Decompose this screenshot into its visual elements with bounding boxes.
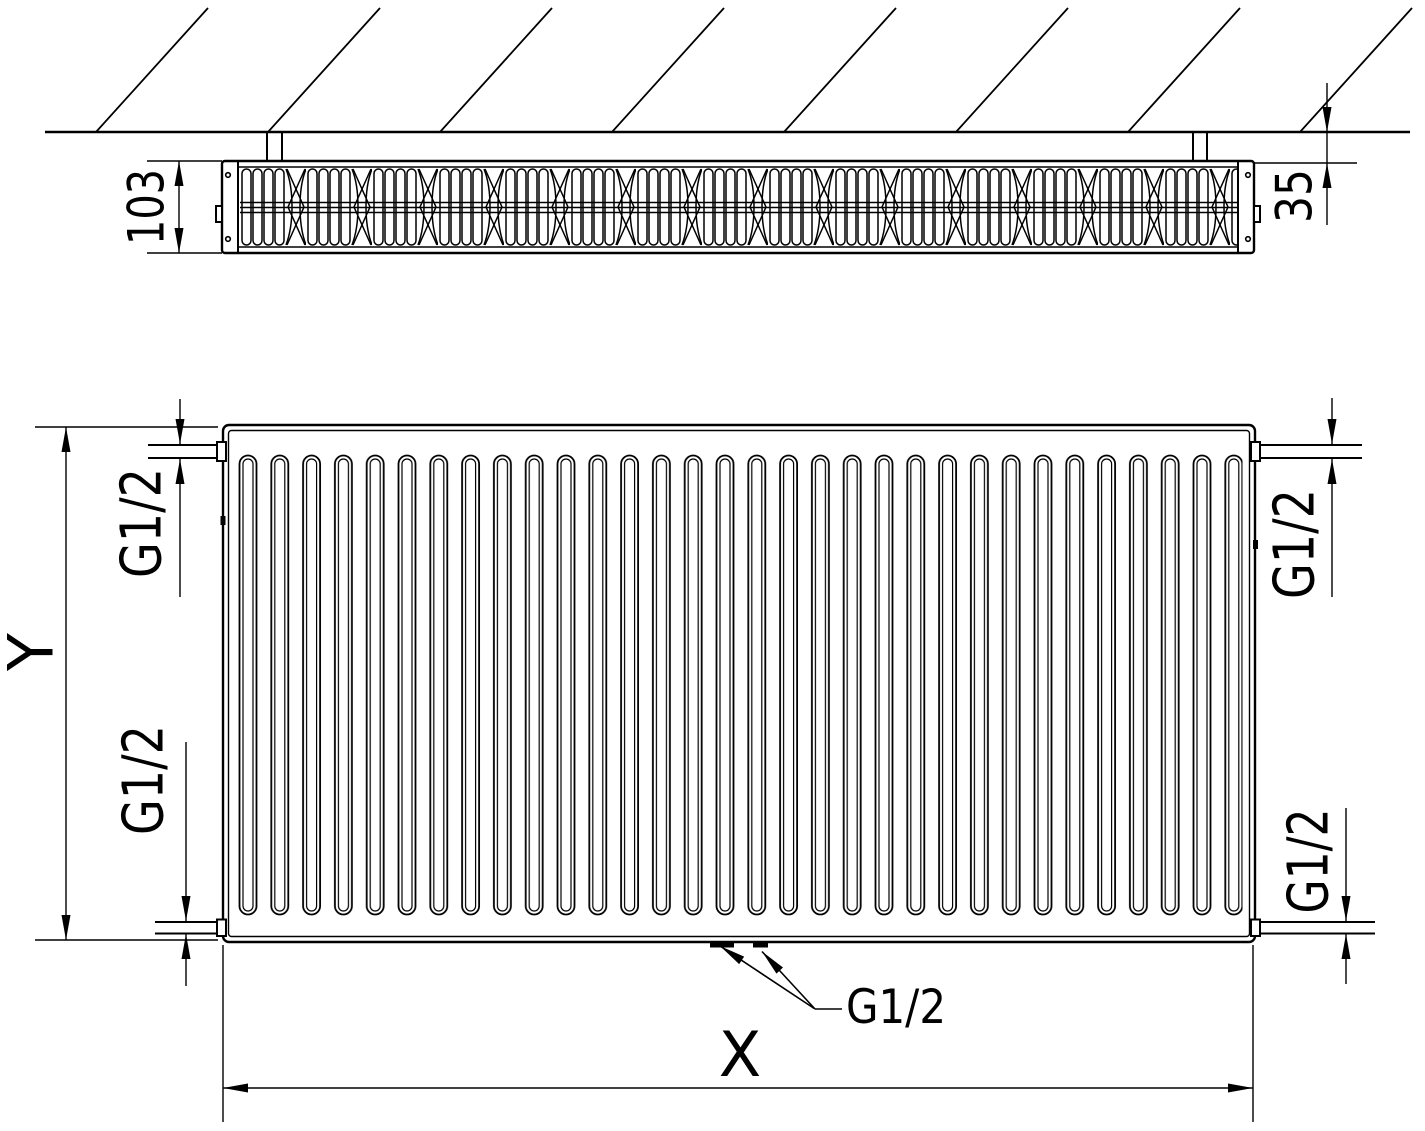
dim-label-g12-top-right: G1/2 bbox=[1263, 489, 1328, 599]
arrowhead-icon bbox=[1323, 163, 1332, 188]
side-connection-right bbox=[1254, 206, 1260, 222]
connection-stub-bottom-right bbox=[1251, 920, 1375, 937]
dim-g12-top-right: G1/2 bbox=[1263, 398, 1337, 599]
connection-stub-top-right bbox=[1251, 442, 1362, 461]
mounting-bracket-left bbox=[267, 132, 282, 161]
connection-stub-bottom-left bbox=[155, 920, 226, 937]
dim-g12-bottom-left: G1/2 bbox=[112, 725, 191, 986]
arrowhead-icon bbox=[1328, 419, 1337, 444]
arrowhead-icon bbox=[182, 896, 191, 921]
dim-label-g12-bottom-left: G1/2 bbox=[112, 725, 177, 835]
dim-label-depth: 103 bbox=[118, 169, 176, 245]
dim-label-g12-bottom-right: G1/2 bbox=[1277, 809, 1342, 914]
dim-g12-bottom-right: G1/2 bbox=[1277, 808, 1351, 984]
dim-label-g12-bottom-center: G1/2 bbox=[846, 980, 946, 1035]
panel-edge-tick-right bbox=[1253, 540, 1258, 549]
arrowhead-icon bbox=[175, 228, 184, 253]
wall-hatching bbox=[96, 8, 1412, 132]
top-view: 103 35 bbox=[45, 8, 1412, 253]
arrowhead-icon bbox=[1228, 1084, 1253, 1093]
arrowhead-icon bbox=[62, 427, 71, 452]
arrowhead-icon bbox=[1323, 107, 1332, 132]
radiator-top-view-body bbox=[216, 161, 1260, 253]
panel-corrugations bbox=[239, 454, 1243, 918]
mounting-bracket-right bbox=[1193, 132, 1207, 161]
arrowhead-icon bbox=[1342, 934, 1351, 959]
dim-label-height-y: Y bbox=[0, 633, 68, 672]
radiator-technical-drawing: 103 35 bbox=[0, 0, 1425, 1131]
end-cap-plug-icon bbox=[1246, 237, 1251, 242]
end-cap-plug-icon bbox=[226, 237, 231, 242]
dim-wall-clearance: 35 bbox=[1254, 83, 1357, 225]
connection-stub-top-left bbox=[148, 442, 226, 461]
side-connection-left bbox=[216, 206, 222, 222]
arrowhead-icon bbox=[223, 1084, 248, 1093]
dim-label-wall-clearance: 35 bbox=[1266, 169, 1324, 223]
arrowhead-icon bbox=[176, 419, 185, 444]
dim-label-length-x: X bbox=[719, 1018, 761, 1091]
dim-depth: 103 bbox=[118, 161, 223, 253]
panel-edge-tick-left bbox=[221, 516, 226, 525]
radiator-front-panel bbox=[221, 425, 1259, 942]
bottom-connection-tab bbox=[753, 942, 768, 948]
dim-length-x: X bbox=[223, 945, 1253, 1122]
arrowhead-icon bbox=[62, 915, 71, 940]
arrowhead-icon bbox=[1328, 459, 1337, 484]
arrowhead-icon bbox=[175, 161, 184, 186]
dim-label-g12-top-left: G1/2 bbox=[110, 468, 175, 578]
front-view: Y G1/2 G1/2 G1/2 G1/2 bbox=[0, 398, 1375, 1122]
dim-g12-top-left: G1/2 bbox=[110, 399, 185, 597]
arrowhead-icon bbox=[182, 934, 191, 959]
end-cap-plug-icon bbox=[226, 173, 231, 178]
end-cap-plug-icon bbox=[1246, 173, 1251, 178]
arrowhead-icon bbox=[1342, 896, 1351, 921]
arrowhead-icon bbox=[176, 459, 185, 484]
